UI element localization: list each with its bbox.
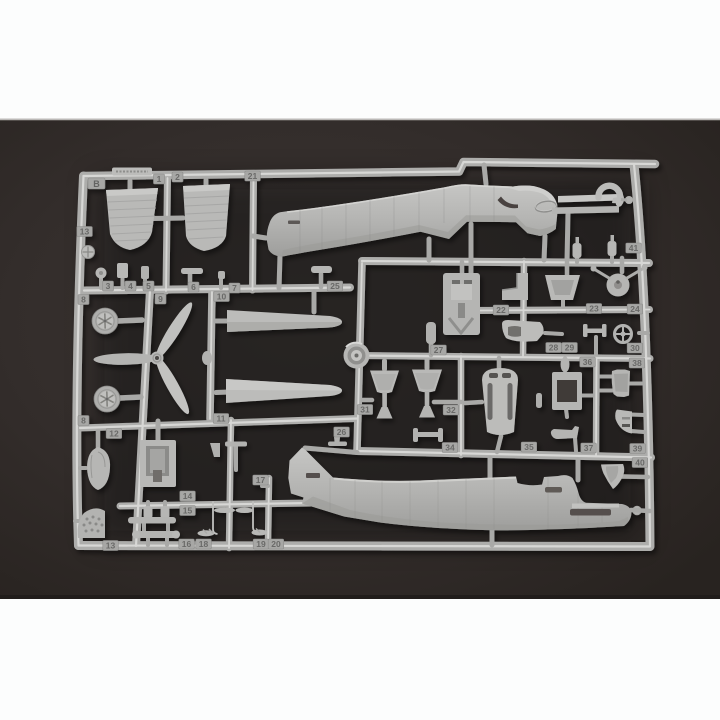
svg-text:26: 26 [337,427,347,437]
svg-text:21: 21 [248,171,258,181]
svg-text:2: 2 [175,172,180,182]
svg-text:8: 8 [81,415,86,425]
svg-text:20: 20 [271,539,281,549]
svg-text:40: 40 [635,457,645,467]
svg-text:34: 34 [445,442,455,452]
svg-text:32: 32 [446,405,456,415]
svg-text:27: 27 [434,345,444,355]
svg-text:24: 24 [630,304,640,314]
svg-text:9: 9 [158,294,163,304]
svg-text:4: 4 [128,281,133,291]
svg-text:6: 6 [191,282,196,292]
svg-text:16: 16 [182,539,192,549]
svg-text:38: 38 [632,358,642,368]
svg-text:8: 8 [81,294,86,304]
svg-text:28: 28 [549,342,559,352]
svg-text:10: 10 [217,291,227,301]
svg-text:3: 3 [106,281,111,291]
svg-text:18: 18 [199,539,209,549]
svg-text:5: 5 [146,281,151,291]
svg-text:19: 19 [256,539,266,549]
svg-text:41: 41 [629,243,639,253]
svg-text:36: 36 [583,357,593,367]
svg-text:15: 15 [183,505,193,515]
svg-text:17: 17 [256,475,266,485]
svg-text:14: 14 [183,491,193,501]
svg-text:7: 7 [232,283,237,293]
svg-text:22: 22 [496,305,506,315]
svg-text:23: 23 [589,303,599,313]
svg-text:39: 39 [633,443,643,453]
svg-text:13: 13 [106,540,116,550]
svg-text:1: 1 [157,174,162,184]
svg-text:13: 13 [80,226,90,236]
svg-text:35: 35 [524,442,534,452]
svg-text:31: 31 [360,404,370,414]
svg-text:30: 30 [630,343,640,353]
svg-text:11: 11 [217,413,226,423]
svg-text:25: 25 [330,281,340,291]
svg-text:12: 12 [109,428,119,438]
svg-text:37: 37 [584,443,594,453]
svg-text:29: 29 [565,342,575,352]
svg-text:B: B [93,179,100,189]
